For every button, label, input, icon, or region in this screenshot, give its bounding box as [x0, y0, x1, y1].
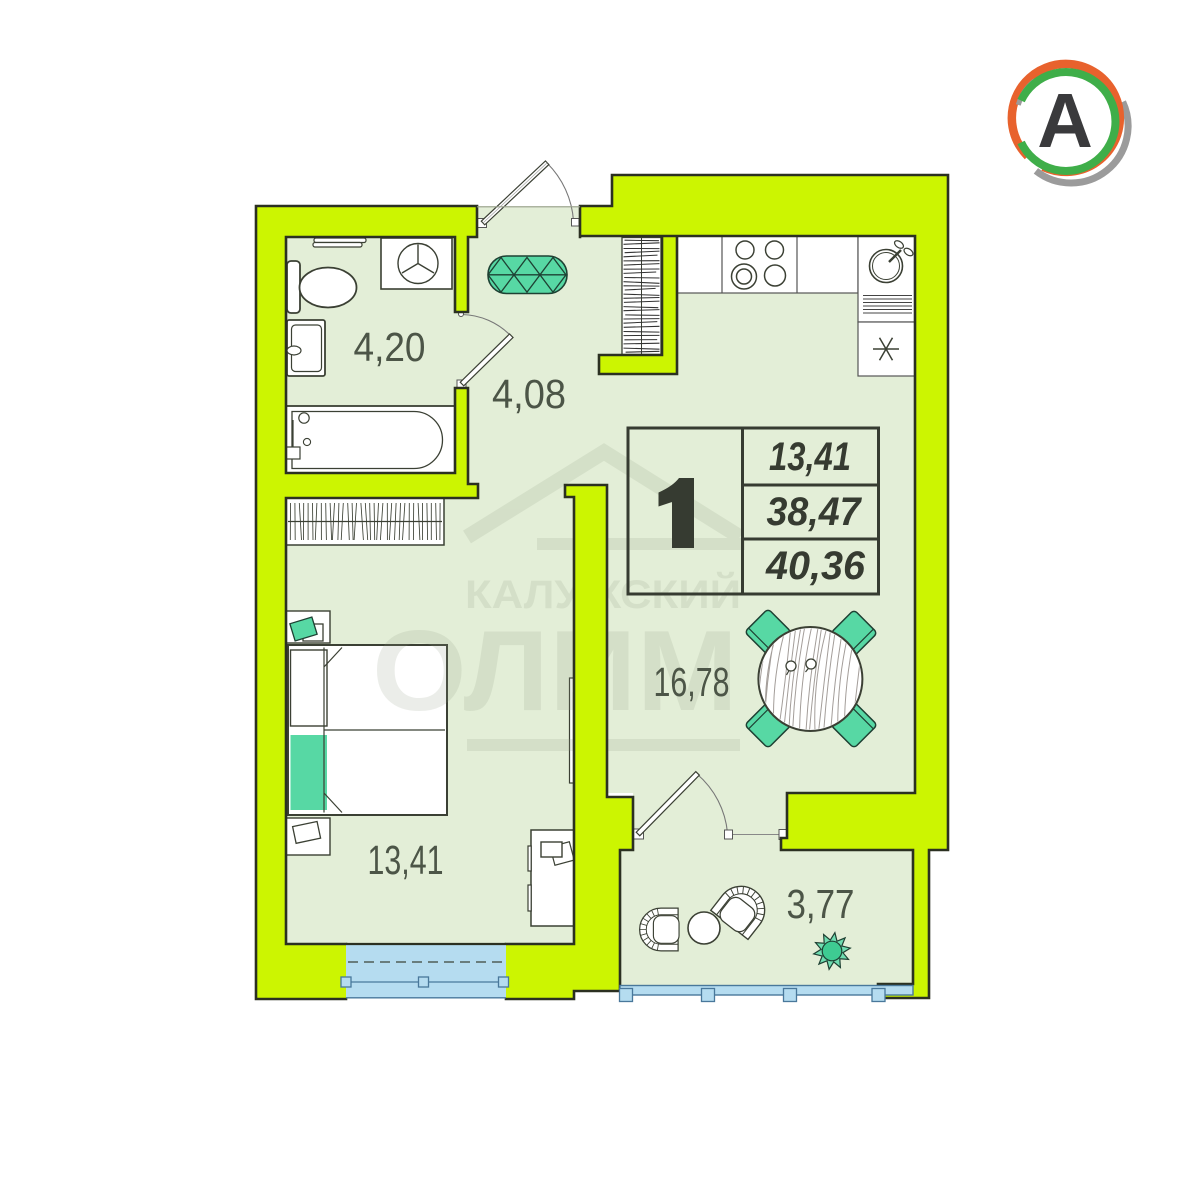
svg-text:3,77: 3,77 — [787, 881, 855, 927]
svg-text:13,41: 13,41 — [368, 837, 444, 883]
svg-text:40,36: 40,36 — [765, 544, 866, 588]
svg-text:38,47: 38,47 — [767, 490, 863, 534]
svg-text:А: А — [1037, 78, 1093, 164]
svg-text:4,20: 4,20 — [354, 324, 426, 370]
svg-text:13,41: 13,41 — [769, 435, 851, 479]
svg-text:4,08: 4,08 — [492, 371, 566, 417]
svg-text:16,78: 16,78 — [654, 659, 730, 705]
